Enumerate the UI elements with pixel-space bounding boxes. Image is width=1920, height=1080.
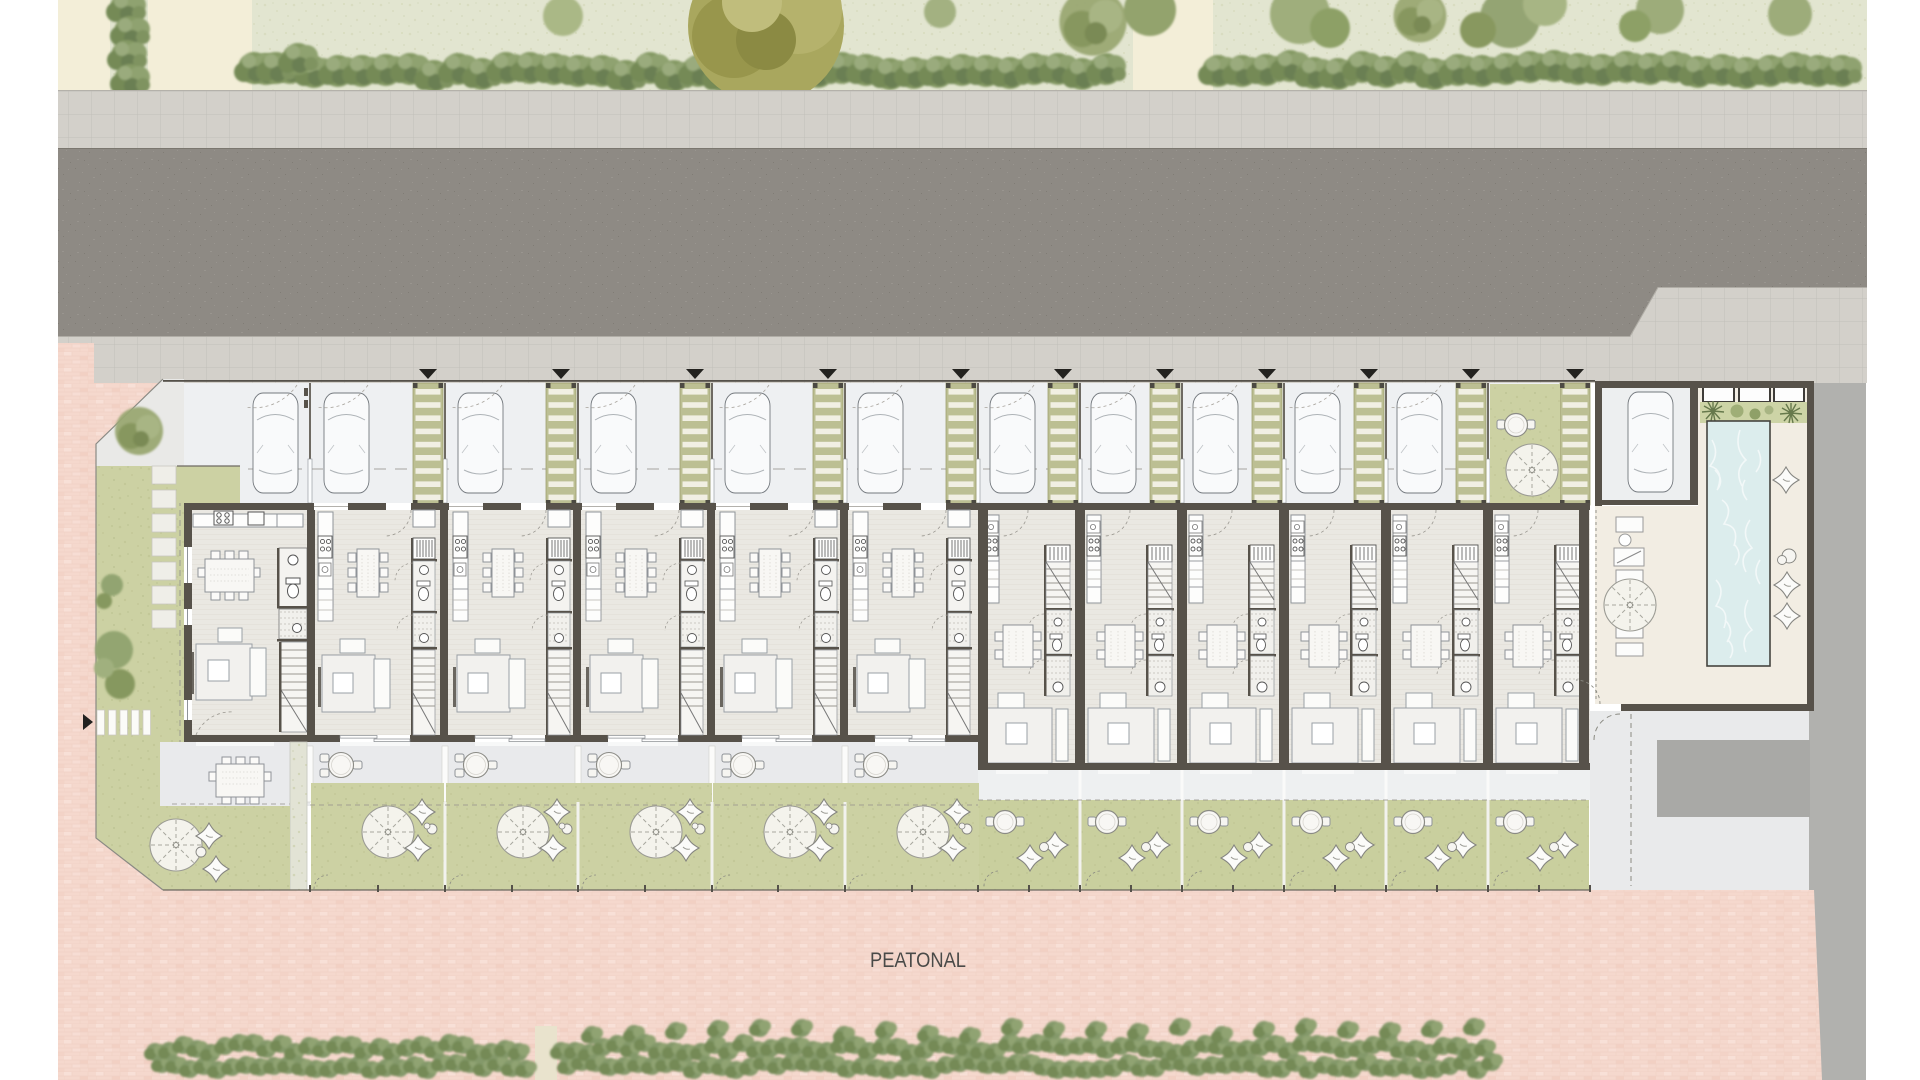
svg-text:PEATONAL: PEATONAL <box>870 949 966 972</box>
